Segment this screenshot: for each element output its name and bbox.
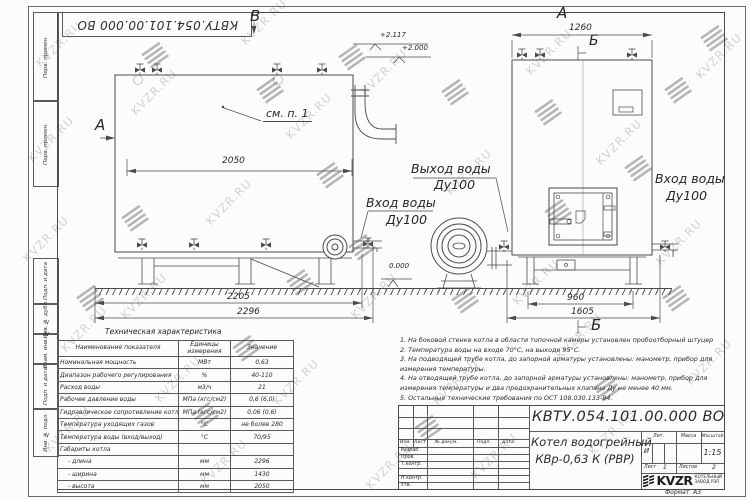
spec-table: Наименование показателя Единицы измерени… [57,340,294,493]
spec-row: Температура уходящих газов°Сне более 280 [58,418,294,430]
spec-name: Температура воды (вход/выход) [58,431,179,443]
spec-name: Расход воды [58,381,179,393]
frame-field: Перв. примен. [33,100,59,187]
spec-units: °С [179,418,231,430]
lit-label: Лит. [641,434,676,439]
title-block-doc-number: КВТУ.054.101.00.000 ВО [532,409,721,425]
spec-value: 2296 [231,456,294,468]
spec-value: 0,06 (0,6) [231,406,294,418]
spec-row: - длинамм2296 [58,456,294,468]
spec-name: Рабочее давление воды [58,394,179,406]
dim-frame-width: 960 [567,293,584,303]
spec-units: мм [179,468,231,480]
kvzr-logo-icon [643,474,654,487]
spec-value [231,443,294,455]
role-nkontr: Н.контр. [401,476,422,481]
water-inlet-left-size: Ду100 [386,212,427,227]
spec-table-header: Наименование показателя Единицы измерени… [58,341,294,357]
spec-name: Габариты котла [58,443,179,455]
lit-value: И [641,447,652,455]
frame-field-label: Подп. и дата [43,262,49,300]
drawing-sheet: KVZR.RU KVZR.RU KVZR.RU KVZR.RU KVZR.RU … [0,0,750,500]
water-inlet-right-label: Вход воды [655,171,725,186]
product-title-line1: Котел водогрейный [531,435,639,449]
spec-name: Диапазон рабочего регулирования [58,369,179,381]
water-inlet-right-size: Ду100 [666,188,707,203]
spec-units: % [179,369,231,381]
elevation-ground: 0.000 [389,262,409,270]
spec-units [179,443,231,455]
frame-field-label: Перв. примен. [43,36,49,78]
role-prov: Пров. [401,455,415,460]
kvzr-logo: KVZR КОТЕЛЬНЫЙЗАВОД РЭП [643,472,722,488]
frame-field-label: Инв. № подл. [43,413,49,452]
spec-row: Диапазон рабочего регулирования%40-110 [58,369,294,381]
col-date: Дата [502,440,514,445]
spec-units: м3/ч [179,381,231,393]
spec-row: Температура воды (вход/выход)°С70/95 [58,431,294,443]
col-sign: Подп. [477,440,491,445]
spec-units: мм [179,456,231,468]
dim-overall-length: 2296 [237,307,260,317]
format-note: Формат А3 [665,489,701,496]
role-razrab: Разраб. [401,448,420,453]
spec-name: Номинальная мощность [58,357,179,369]
spec-units: мм [179,480,231,492]
format-label: Формат [665,489,689,496]
frame-field: Перв. примен. [33,12,59,102]
frame-field-label: Перв. примен. [43,123,49,165]
doc-number-stamp-text: КВТУ.054.101.00.000 ВО [77,18,238,32]
spec-value: 70/95 [231,431,294,443]
view-label-v: В [250,7,260,25]
water-outlet-size: Ду100 [434,177,475,192]
spec-value: 21 [231,381,294,393]
view-label-a-left: А [95,116,105,134]
spec-col-units: Единицы измерения [179,341,231,357]
spec-name: Температура уходящих газов [58,418,179,430]
kvzr-logo-sub2: ЗАВОД РЭП [695,480,722,485]
note-1: 1. На боковой стенке котла в области топ… [400,336,721,346]
frame-field: Подп. и дата [33,258,59,305]
sheets-label: Листов [679,465,697,470]
section-label-b-top: Б [589,33,599,49]
spec-value: 0,63 [231,357,294,369]
kvzr-logo-text: KVZR [656,473,692,488]
dim-front-width: 1260 [569,23,592,33]
spec-row: Рабочее давление водыМПа (кгс/см2)0,6 (6… [58,394,294,406]
note-4: 4. На отводящей трубе котла, до запорной… [400,374,721,393]
spec-units: МПа (кгс/см2) [179,406,231,418]
spec-name: Гидравлическое сопротивление котла [58,406,179,418]
sheets-value: 2 [712,464,716,471]
spec-units: МПа (кгс/см2) [179,394,231,406]
callout-see-item: см. п. 1 [263,107,312,122]
spec-value: 2050 [231,480,294,492]
role-tkontr: Т.контр. [401,462,422,467]
spec-units: °С [179,431,231,443]
spec-row: Расход водым3/ч21 [58,381,294,393]
elevation-stack-top: +2.117 [380,31,406,39]
frame-field: Взам. инв. № [33,333,59,365]
spec-value: не более 280 [231,418,294,430]
spec-name: - высота [58,480,179,492]
dim-frame-length: 2205 [227,292,250,302]
sheet-value: 1 [663,464,667,471]
dim-body-length: 2050 [222,156,245,166]
view-label-a-right: А [557,4,567,22]
frame-field: Инв. № подл. [33,408,59,457]
product-title-line2: КВр-0,63 К (РВР) [531,452,639,466]
col-list: Лист [414,440,426,445]
doc-number-stamp: КВТУ.054.101.00.000 ВО [62,12,252,37]
water-inlet-left-label: Вход воды [366,195,436,210]
spec-table-title: Техническая характеристика [105,327,222,336]
note-2: 2. Температура воды на входе 70°С, на вы… [400,346,721,356]
spec-name: - ширина [58,468,179,480]
elevation-outlet-top: +2.000 [402,44,428,52]
frame-field: Подп. и дата [33,363,59,410]
spec-row: Гидравлическое сопротивление котлаМПа (к… [58,406,294,418]
section-label-b-bottom: Б [591,316,601,334]
sheet-label: Лист [644,465,656,470]
spec-value: 0,6 (6,0) [231,394,294,406]
spec-row: Номинальная мощностьМВт0,63 [58,357,294,369]
spec-units: МВт [179,357,231,369]
note-5: 5. Остальные технические требования по О… [400,394,721,404]
spec-name: - длина [58,456,179,468]
spec-row: - высотамм2050 [58,480,294,492]
scale-label: Масштаб [701,434,724,439]
mass-label: Масса [676,434,701,439]
note-3: 3. На подводящей трубе котла, до запорно… [400,355,721,374]
title-block: КВТУ.054.101.00.000 ВО Изм. Лист № докум… [398,405,725,490]
spec-col-value: Значение [231,341,294,357]
spec-col-name: Наименование показателя [58,341,179,357]
spec-value: 1430 [231,468,294,480]
role-utv: Утв. [401,483,411,488]
col-doc: № докум. [435,440,458,445]
water-outlet-label: Выход воды [411,161,491,176]
spec-row: Габариты котла [58,443,294,455]
technical-notes: 1. На боковой стенке котла в области топ… [400,336,721,403]
spec-value: 40-110 [231,369,294,381]
frame-field-label: Подп. и дата [43,367,49,405]
format-value: А3 [693,489,701,496]
scale-value: 1:15 [701,448,724,457]
spec-row: - ширинамм1430 [58,468,294,480]
col-izm: Изм. [400,440,411,445]
